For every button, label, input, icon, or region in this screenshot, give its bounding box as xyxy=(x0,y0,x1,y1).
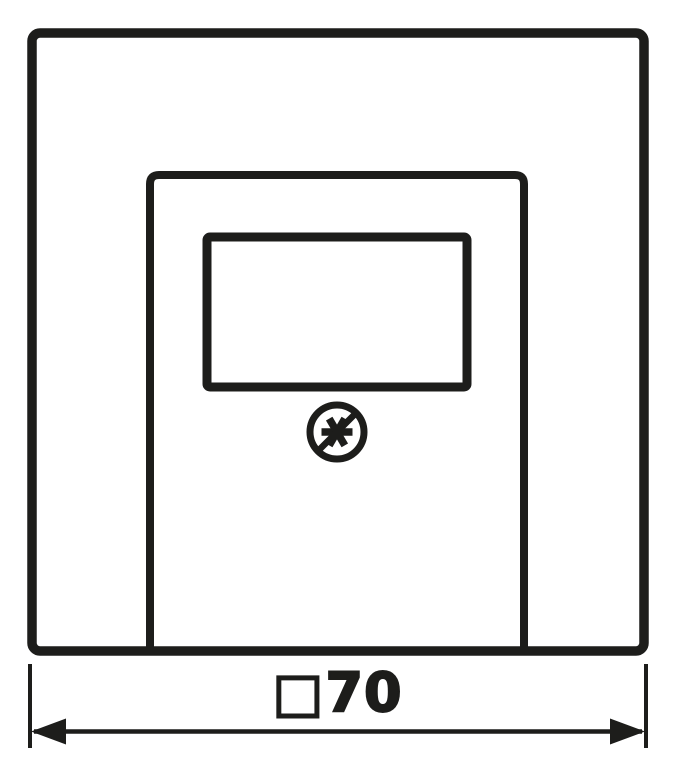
tae-window-opening xyxy=(207,237,467,387)
outer-plate-outline xyxy=(32,33,644,651)
technical-drawing-canvas: □70 xyxy=(0,0,675,776)
square-symbol: □ xyxy=(272,661,325,724)
arrowhead-left-icon xyxy=(31,719,66,745)
dimension-label: □70 xyxy=(0,666,675,720)
screw-fixing-icon xyxy=(310,405,364,459)
cover-plate-drawing xyxy=(0,0,675,776)
dimension-value: 70 xyxy=(325,661,402,724)
arrowhead-right-icon xyxy=(610,719,645,745)
